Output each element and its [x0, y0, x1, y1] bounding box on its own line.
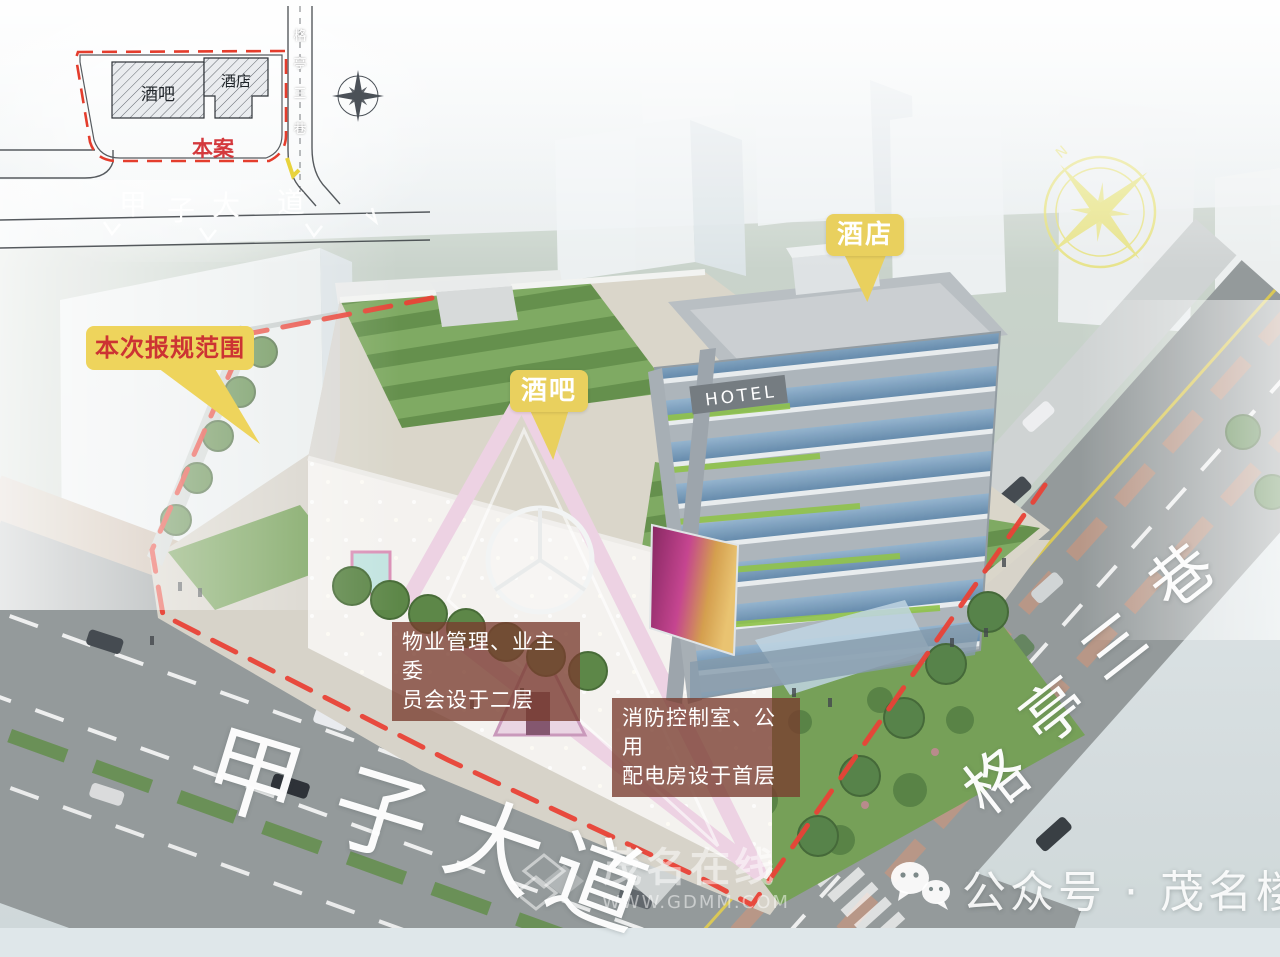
plan-main-road-name: 甲 子 大 道: [119, 186, 305, 227]
watermark-site-url: WWW.GDMM.COM: [602, 892, 790, 913]
svg-text:格: 格: [293, 28, 306, 44]
svg-text:三: 三: [293, 87, 306, 102]
svg-text:巷: 巷: [293, 122, 306, 137]
fire-control-label: 消防控制室、公用 配电房设于首层: [612, 698, 800, 797]
watermark-logo-icon: [520, 849, 592, 913]
hotel-callout: 酒店: [826, 214, 904, 256]
aerial-rendering: HOTEL: [0, 0, 1280, 928]
wechat-icon: [888, 856, 958, 916]
scope-callout: 本次报规范围: [86, 326, 254, 370]
plan-hotel-label: 酒店: [221, 72, 251, 90]
bar-callout: 酒吧: [510, 370, 588, 412]
svg-text:大: 大: [212, 189, 240, 222]
property-management-label: 物业管理、业主委 员会设于二层: [392, 622, 580, 721]
svg-text:甲: 甲: [119, 188, 147, 221]
plan-yellow-arrow: [287, 158, 299, 176]
watermark: 茂名在线 WWW.GDMM.COM: [520, 848, 790, 913]
official-account-text: 公众号 · 茂名楼市: [962, 856, 1280, 920]
plan-compass-icon: [332, 70, 384, 122]
inset-site-plan: 酒吧 酒店 本案 格 亭 三 巷 甲 子 大 道: [0, 0, 430, 262]
plan-site-label: 本案: [192, 137, 235, 161]
plan-bar-label: 酒吧: [141, 85, 175, 105]
watermark-site-name: 茂名在线: [602, 848, 790, 888]
svg-text:子: 子: [167, 194, 195, 227]
rendering-page: { "callouts": { "scope": { "text": "本次报规…: [0, 0, 1280, 928]
svg-text:道: 道: [277, 186, 305, 219]
svg-text:亭: 亭: [293, 56, 306, 72]
